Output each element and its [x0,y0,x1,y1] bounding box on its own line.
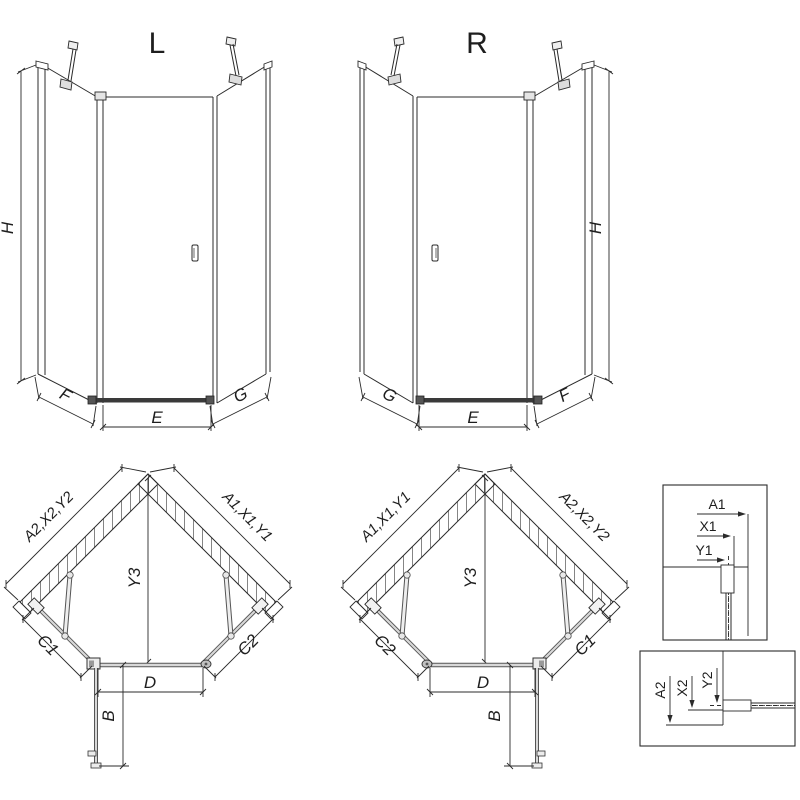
dim-label-g-left: G [230,384,250,407]
plan-right-dim-c1: C1 [571,631,600,660]
plan-right-dim-c2: C2 [370,631,399,660]
detail-top-label-y1: Y1 [695,542,712,558]
front-view-left-title: L [149,27,166,60]
detail-box-top: A1 X1 Y1 [663,485,767,640]
plan-right-dim-y3: Y3 [461,567,480,588]
front-view-left-geometry [17,37,272,431]
detail-top-label-a1: A1 [708,496,725,512]
detail-bottom-label-x2: X2 [674,679,690,696]
dim-label-e-left: E [151,408,163,427]
plan-left-dim-d: D [144,673,156,692]
shower-enclosure-diagram: L H F E G R H G E F A2,X2,Y2 A1,X1,Y1 Y3… [0,0,800,800]
plan-left-wall-label-a1x1y1: A1,X1,Y1 [218,488,276,546]
front-view-left: L H F E G [0,27,272,431]
dim-label-h-left: H [0,221,17,234]
plan-view-left: A2,X2,Y2 A1,X1,Y1 Y3 C1 C2 D B [4,464,292,769]
detail-box-bottom: A2 X2 Y2 [640,651,795,746]
plan-right-dim-d: D [477,673,489,692]
dim-label-e-right: E [467,408,479,427]
plan-left-dim-c1: C1 [33,631,62,660]
plan-left-dim-y3: Y3 [125,567,144,588]
plan-right-wall-label-a1x1y1: A1,X1,Y1 [357,488,415,546]
dim-label-f-left: F [57,384,76,406]
front-view-right-geometry [358,37,613,431]
dim-label-h-right: H [586,221,605,234]
plan-right-dim-b: B [485,710,504,721]
plan-left-wall-label-a2x2y2: A2,X2,Y2 [20,488,78,546]
detail-top-label-x1: X1 [699,518,716,534]
technical-drawing-page: L H F E G R H G E F A2,X2,Y2 A1,X1,Y1 Y3… [0,0,800,800]
front-view-right: R H G E F [358,27,613,431]
detail-bottom-label-a2: A2 [652,681,668,698]
dim-label-g-right: G [379,384,399,407]
plan-left-dim-b: B [99,710,118,721]
detail-bottom-label-y2: Y2 [699,671,715,688]
front-view-right-title: R [466,27,488,60]
dim-label-f-right: F [556,384,575,406]
plan-right-wall-label-a2x2y2: A2,X2,Y2 [555,488,613,546]
plan-left-dim-c2: C2 [234,630,263,659]
plan-view-right: A1,X1,Y1 A2,X2,Y2 Y3 C2 C1 D B [341,464,629,769]
